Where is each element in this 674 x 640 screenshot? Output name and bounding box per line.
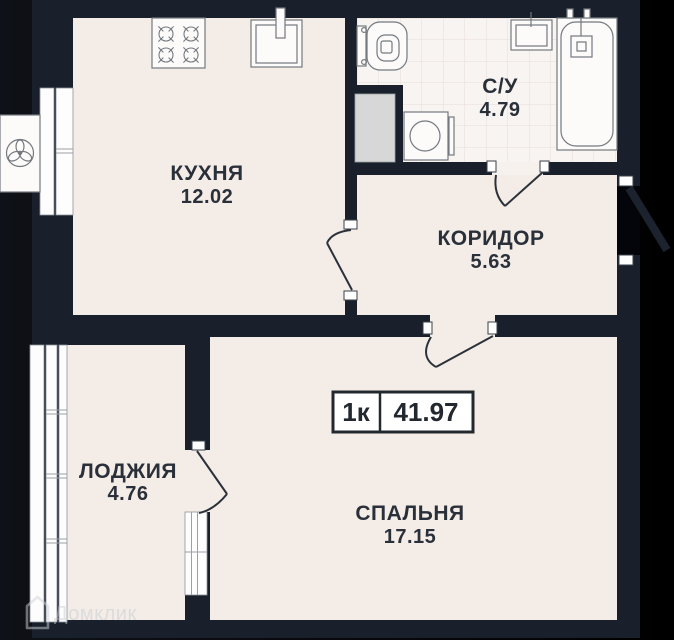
- loggia-label: ЛОДЖИЯ: [79, 460, 177, 483]
- stove-icon: [152, 18, 205, 68]
- kitchen-area: 12.02: [181, 186, 234, 208]
- fan-unit-icon: [0, 115, 40, 192]
- badge-rooms: 1к: [342, 397, 370, 427]
- bathroom-door-opening: [492, 162, 543, 175]
- bedroom-floor: [210, 337, 617, 620]
- bedroom-label: СПАЛЬНЯ: [355, 502, 464, 525]
- badge-total-area: 41.97: [393, 397, 458, 427]
- watermark-label: Домклик: [54, 603, 137, 625]
- kitchen-label: КУХНЯ: [170, 162, 243, 185]
- loggia-window-right: [185, 512, 207, 595]
- loggia-area: 4.76: [108, 483, 149, 505]
- shaft-wall-right: [395, 94, 403, 162]
- loggia-window-left: [30, 345, 67, 622]
- bedroom-door-opening: [430, 315, 495, 337]
- bedroom-area: 17.15: [384, 526, 437, 548]
- shaft-wall-top: [345, 85, 403, 94]
- kitchen-window: [40, 88, 73, 215]
- apartment-badge: 1к 41.97: [333, 392, 473, 432]
- floor-plan-svg: КУХНЯ 12.02 С/У 4.79 КОРИДОР 5.63 ЛОДЖИЯ…: [0, 0, 674, 640]
- bathtub-icon: [557, 9, 617, 150]
- toilet-icon: [357, 22, 407, 70]
- bathroom-area: 4.79: [480, 99, 521, 121]
- floor-plan-screenshot: КУХНЯ 12.02 С/У 4.79 КОРИДОР 5.63 ЛОДЖИЯ…: [0, 0, 674, 640]
- loggia-door-opening: [185, 450, 210, 512]
- corridor-label: КОРИДОР: [437, 227, 544, 250]
- corridor-area: 5.63: [471, 251, 512, 273]
- shaft: [355, 94, 395, 162]
- bathroom-label: С/У: [482, 75, 518, 98]
- washing-machine-icon: [404, 112, 454, 160]
